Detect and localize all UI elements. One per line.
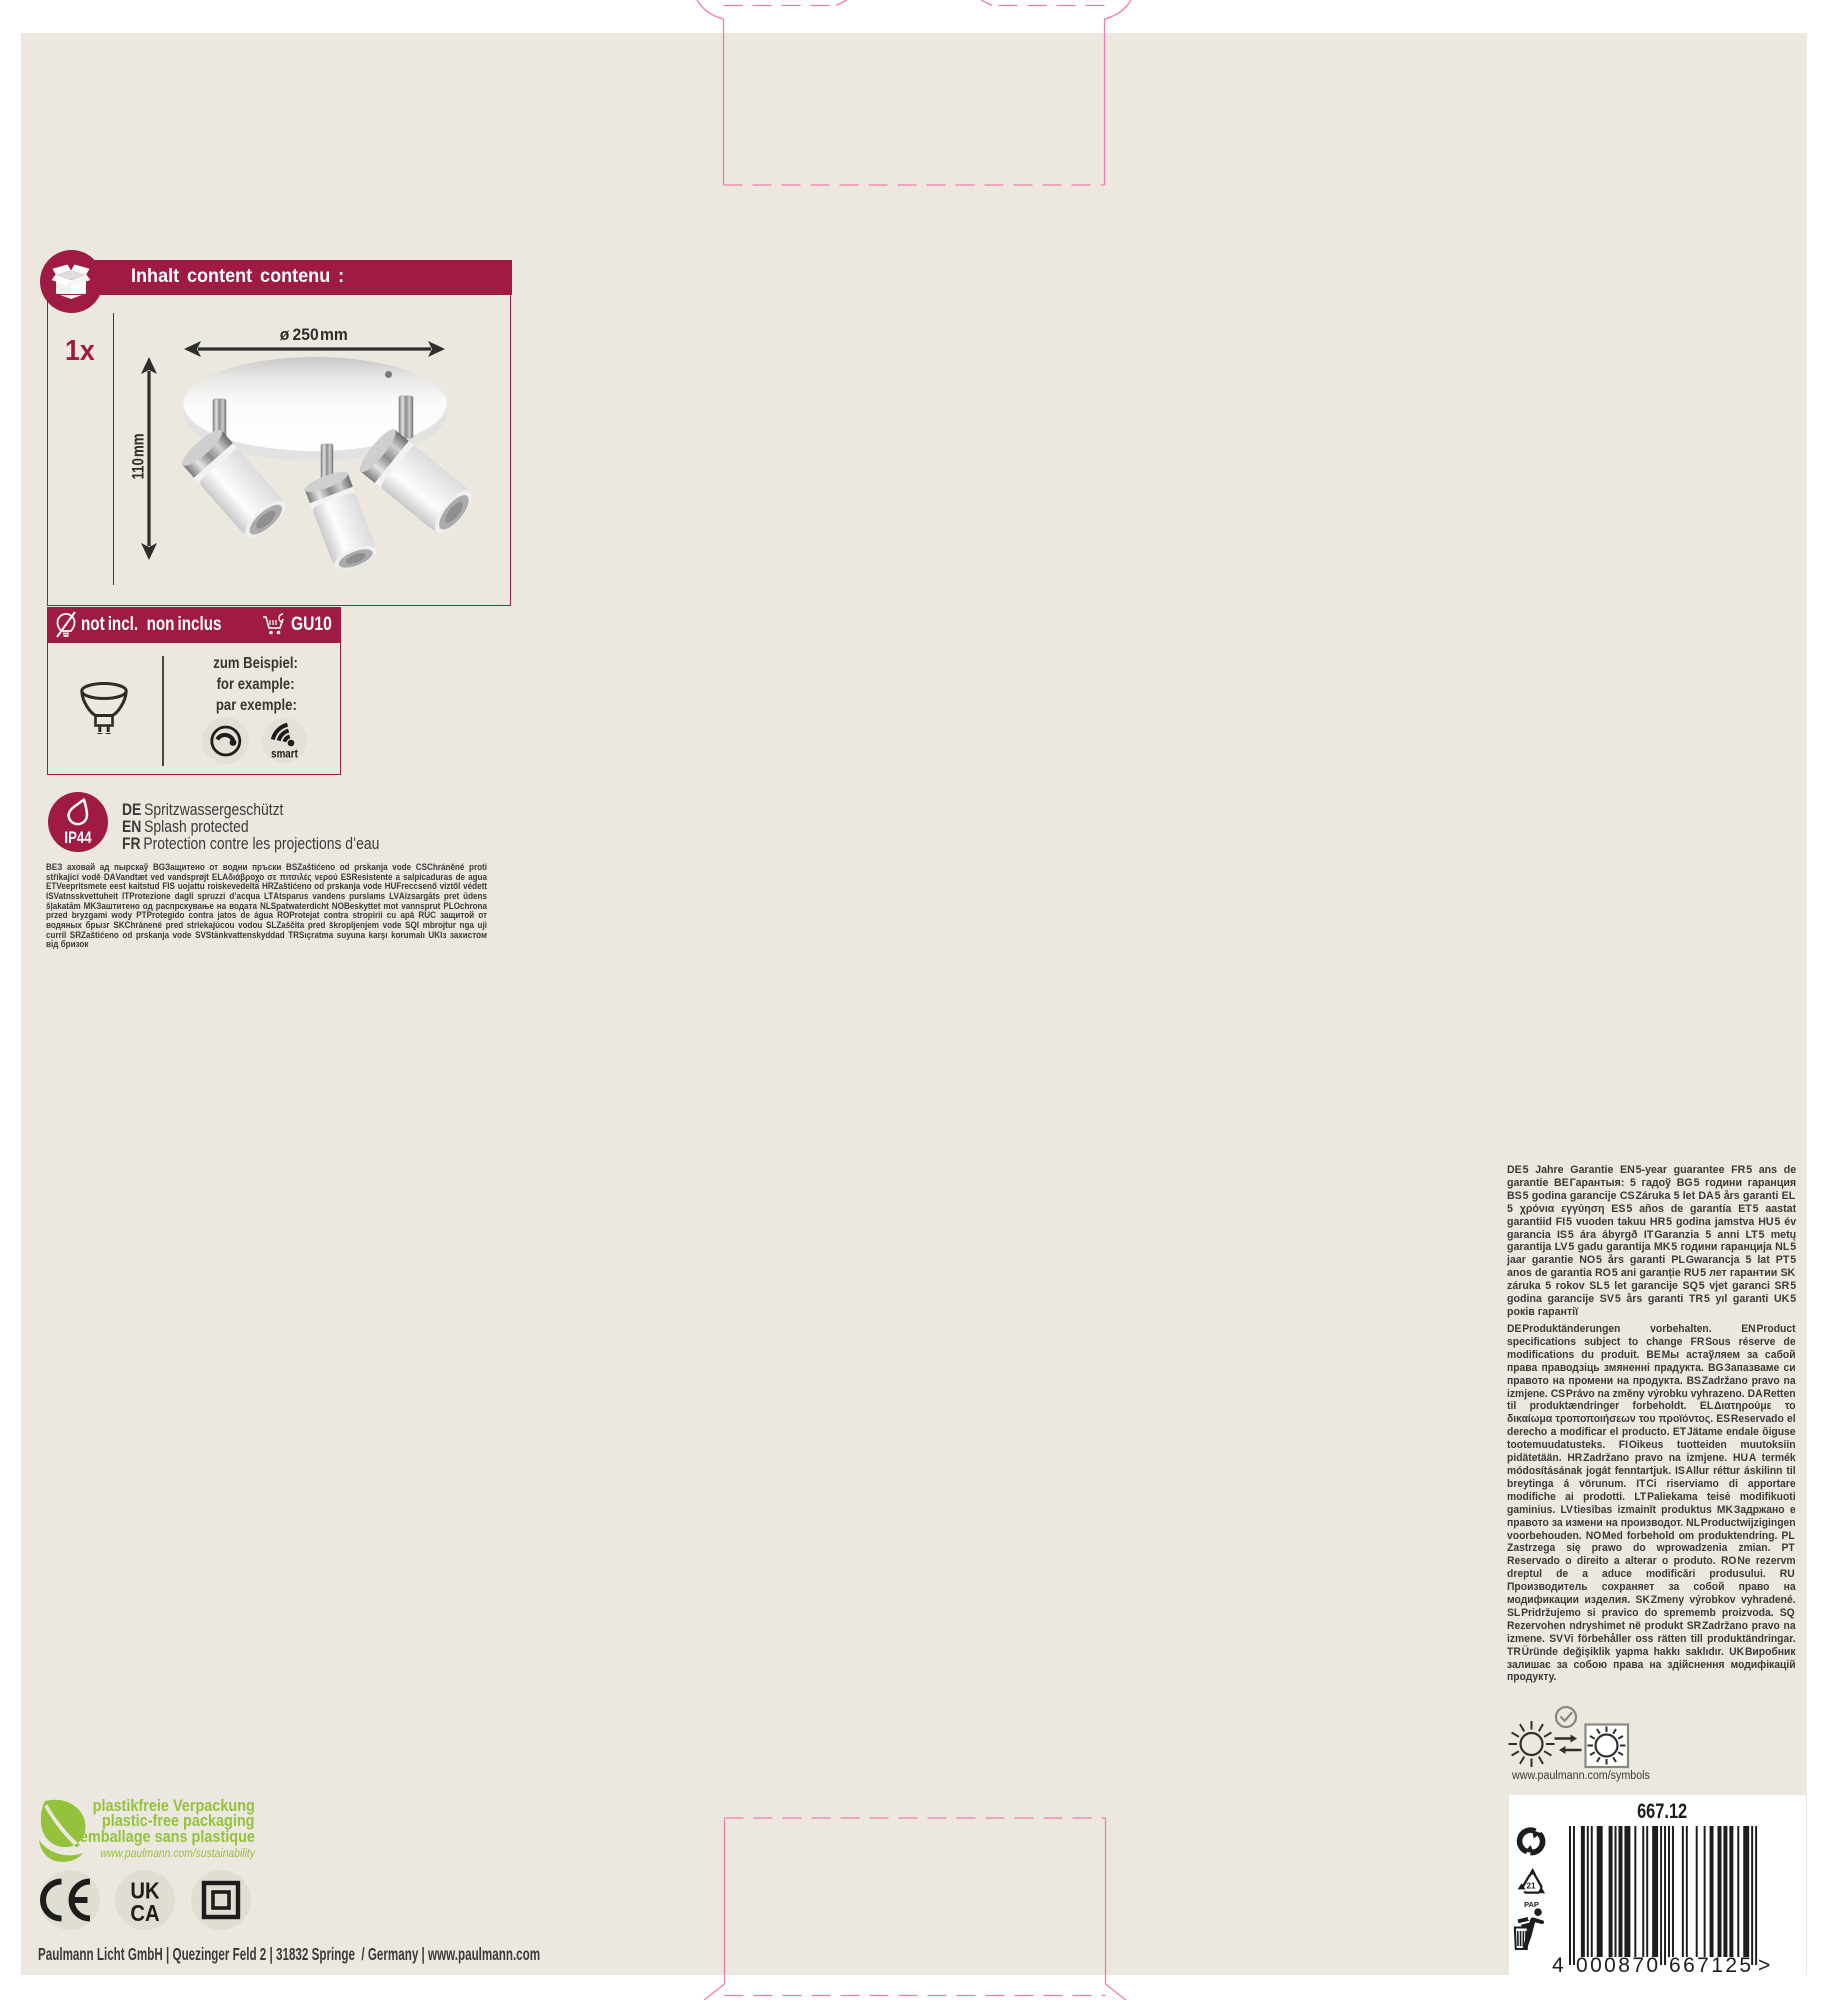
svg-text:PAP: PAP — [1524, 1900, 1539, 1908]
svg-text:smart: smart — [271, 748, 298, 761]
svg-text:IP44: IP44 — [64, 828, 92, 847]
svg-text:21: 21 — [1527, 1882, 1536, 1891]
svg-text:CA: CA — [130, 1900, 160, 1927]
